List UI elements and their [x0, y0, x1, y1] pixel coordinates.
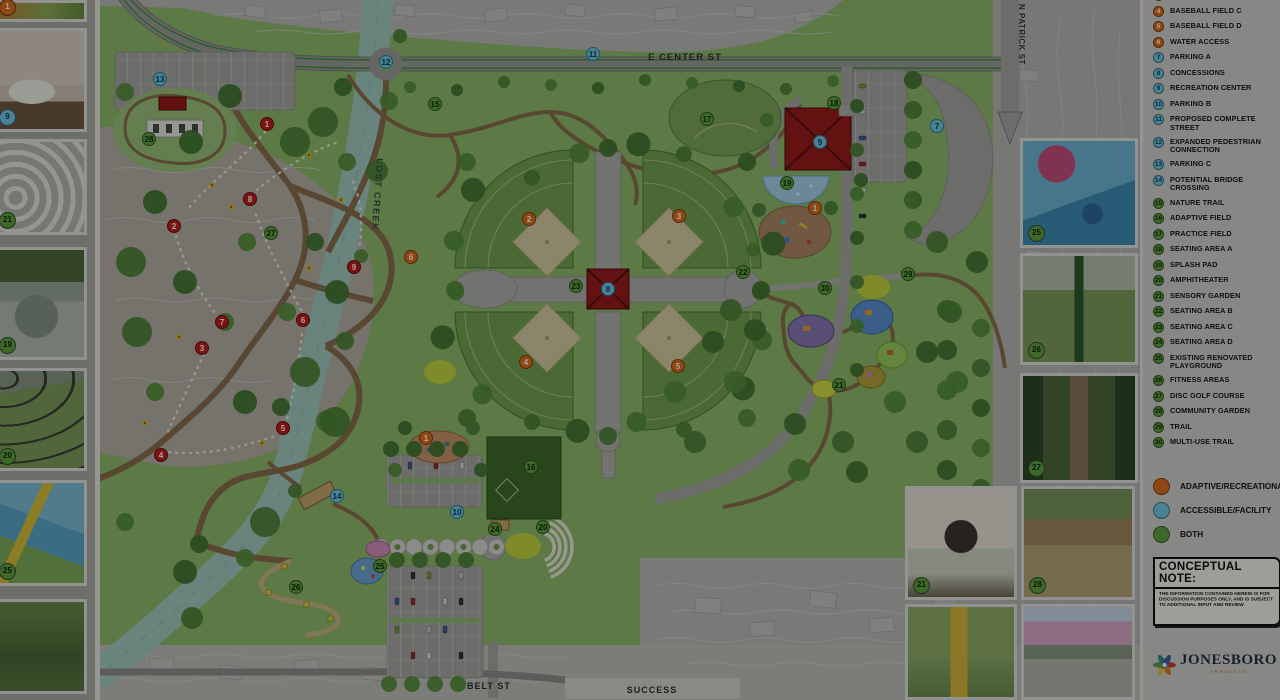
conceptual-note-title: CONCEPTUAL NOTE:: [1155, 559, 1279, 589]
photo-badge-19: 19: [0, 337, 16, 354]
legend-item-15: 15NATURE TRAIL: [1153, 198, 1277, 209]
legend-item-number: 9: [1153, 83, 1164, 94]
legend-item-number: 21: [1153, 291, 1164, 302]
photo-badge-21: 21: [0, 212, 16, 229]
legend-item-label: PRACTICE FIELD: [1170, 229, 1232, 239]
legend-item-label: SENSORY GARDEN: [1170, 291, 1240, 301]
legend-item-14: 14POTENTIAL BRIDGE CROSSING: [1153, 175, 1277, 193]
legend-item-7: 7PARKING A: [1153, 52, 1277, 63]
legend-item-number: 5: [1153, 21, 1164, 32]
legend-item-label: EXISTING RENOVATED PLAYGROUND: [1170, 353, 1277, 371]
legend-item-label: SEATING AREA B: [1170, 306, 1233, 316]
reference-photo: 21: [905, 486, 1017, 600]
legend-item-number: 8: [1153, 68, 1164, 79]
photo-badge-9: 9: [0, 109, 16, 126]
street-label-e-center: E CENTER ST: [648, 52, 722, 63]
legend-item-label: PARKING B: [1170, 99, 1211, 109]
photo-badge-25: 25: [1028, 225, 1045, 242]
legend-item-23: 23SEATING AREA C: [1153, 322, 1277, 333]
legend-item-number: 29: [1153, 422, 1164, 433]
legend-item-label: PROPOSED COMPLETE STREET: [1170, 114, 1277, 132]
legend-item-20: 20AMPHITHEATER: [1153, 275, 1277, 286]
legend-item-number: 12: [1153, 137, 1164, 148]
legend-key-swatch: [1153, 526, 1170, 543]
conceptual-note: CONCEPTUAL NOTE: THE INFORMATION CONTAIN…: [1153, 557, 1280, 626]
adaptive-field: [487, 437, 561, 519]
legend-item-number: 17: [1153, 229, 1164, 240]
existing-playground: [351, 558, 383, 584]
legend-item-label: CONCESSIONS: [1170, 68, 1225, 78]
legend-item-label: COMMUNITY GARDEN: [1170, 406, 1250, 416]
reference-photo: 9: [0, 28, 87, 132]
photo-grid-bottom: 2128: [905, 486, 1139, 700]
legend-item-22: 22SEATING AREA B: [1153, 306, 1277, 317]
logo-state-name: ARKANSAS: [1210, 669, 1247, 674]
reference-photo: 27: [1020, 373, 1138, 483]
legend-item-label: SEATING AREA A: [1170, 244, 1232, 254]
amphitheater-lawn: [505, 533, 541, 559]
legend-item-5: 5BASEBALL FIELD D: [1153, 21, 1277, 32]
legend-item-label: POTENTIAL BRIDGE CROSSING: [1170, 175, 1277, 193]
legend-item-number: 3: [1153, 0, 1164, 1]
legend-item-number: 16: [1153, 213, 1164, 224]
photo-badge-25: 25: [0, 563, 16, 580]
reference-photo: [1021, 604, 1135, 700]
legend-item-number: 22: [1153, 306, 1164, 317]
legend-item-number: 4: [1153, 6, 1164, 17]
photo-badge-1: 1: [0, 0, 16, 16]
photo-strip-left: 1921192025: [0, 0, 92, 700]
conceptual-note-body: THE INFORMATION CONTAINED HEREIN IS FOR …: [1159, 591, 1276, 607]
legend-item-label: SEATING AREA D: [1170, 337, 1233, 347]
legend-item-number: 27: [1153, 391, 1164, 402]
legend-item-label: MULTI-USE TRAIL: [1170, 437, 1234, 447]
legend-item-label: WATER ACCESS: [1170, 37, 1229, 47]
legend-item-label: PARKING A: [1170, 52, 1211, 62]
logo-city-name: JONESBORO: [1180, 652, 1277, 669]
legend-item-number: 26: [1153, 375, 1164, 386]
legend-item-16: 16ADAPTIVE FIELD: [1153, 213, 1277, 224]
jonesboro-logo-icon: [1153, 653, 1176, 677]
sensory-pod: [812, 380, 836, 398]
legend-item-label: FITNESS AREAS: [1170, 375, 1229, 385]
legend-item-number: 11: [1153, 114, 1164, 125]
legend-item-label: DISC GOLF COURSE: [1170, 391, 1245, 401]
legend-item-26: 26FITNESS AREAS: [1153, 375, 1277, 386]
legend-item-number: 14: [1153, 175, 1164, 186]
street-label-success: SUCCESS: [627, 685, 678, 695]
legend-item-number: 24: [1153, 337, 1164, 348]
legend-item-label: TRAIL: [1170, 422, 1192, 432]
street-label-belt: BELT ST: [467, 681, 511, 691]
legend-item-number: 20: [1153, 275, 1164, 286]
legend-item-25: 25EXISTING RENOVATED PLAYGROUND: [1153, 353, 1277, 371]
legend-item-17: 17PRACTICE FIELD: [1153, 229, 1277, 240]
legend-item-29: 29TRAIL: [1153, 422, 1277, 433]
reference-photo: 26: [1020, 253, 1138, 365]
legend-item-label: PARKING C: [1170, 159, 1211, 169]
legend-item-number: 25: [1153, 353, 1164, 364]
reference-photo: [905, 604, 1017, 700]
seating-lawn: [424, 360, 456, 384]
legend-item-21: 21SENSORY GARDEN: [1153, 291, 1277, 302]
legend-item-label: BASEBALL FIELD C: [1170, 6, 1242, 16]
legend-item-8: 8CONCESSIONS: [1153, 68, 1277, 79]
legend-item-number: 7: [1153, 52, 1164, 63]
legend-key-label: ACCESSIBLE/FACILITY: [1180, 506, 1271, 515]
legend-key-swatch: [1153, 502, 1170, 519]
street-label-n-patrick: N PATRICK ST: [1017, 4, 1026, 65]
photo-badge-27: 27: [1028, 460, 1045, 477]
legend-key-b: ACCESSIBLE/FACILITY: [1153, 502, 1277, 519]
photo-badge-21: 21: [913, 577, 930, 594]
legend-item-label: NATURE TRAIL: [1170, 198, 1225, 208]
pavilion-building: [159, 97, 186, 110]
legend-item-label: AMPHITHEATER: [1170, 275, 1229, 285]
legend-key-o: ADAPTIVE/RECREATIONAL: [1153, 478, 1277, 495]
legend-item-label: BASEBALL FIELD D: [1170, 21, 1242, 31]
legend-item-label: RECREATION CENTER: [1170, 83, 1251, 93]
legend-item-number: 18: [1153, 244, 1164, 255]
legend-key-g: BOTH: [1153, 526, 1277, 543]
legend-item-number: 13: [1153, 159, 1164, 170]
photo-badge-28: 28: [1029, 577, 1046, 594]
legend-color-key: ADAPTIVE/RECREATIONALACCESSIBLE/FACILITY…: [1153, 478, 1277, 543]
legend-item-11: 11PROPOSED COMPLETE STREET: [1153, 114, 1277, 132]
legend-item-label: SPLASH PAD: [1170, 260, 1218, 270]
reference-photo: 1: [0, 0, 87, 22]
jonesboro-logo: JONESBORO ARKANSAS: [1153, 652, 1277, 678]
legend-item-number: 23: [1153, 322, 1164, 333]
legend-item-list: 3BASEBALL FIELD B4BASEBALL FIELD C5BASEB…: [1153, 0, 1277, 448]
legend-item-13: 13PARKING C: [1153, 159, 1277, 170]
legend-item-label: EXPANDED PEDESTRIAN CONNECTION: [1170, 137, 1277, 155]
reference-photo: [0, 599, 87, 694]
sheet-edge: [95, 0, 100, 700]
legend-item-3: 3BASEBALL FIELD B: [1153, 0, 1277, 1]
legend-item-12: 12EXPANDED PEDESTRIAN CONNECTION: [1153, 137, 1277, 155]
legend-key-label: ADAPTIVE/RECREATIONAL: [1180, 482, 1280, 491]
legend-item-6: 6WATER ACCESS: [1153, 37, 1277, 48]
legend-item-19: 19SPLASH PAD: [1153, 260, 1277, 271]
existing-playground: [366, 541, 390, 557]
legend-item-number: 15: [1153, 198, 1164, 209]
legend-item-number: 28: [1153, 406, 1164, 417]
sensory-pod: [788, 315, 834, 347]
legend-item-30: 30MULTI-USE TRAIL: [1153, 437, 1277, 448]
photo-strip-right: 252627: [1020, 138, 1138, 483]
legend-item-4: 4BASEBALL FIELD C: [1153, 6, 1277, 17]
legend-item-number: 30: [1153, 437, 1164, 448]
legend-key-label: BOTH: [1180, 530, 1203, 539]
reference-photo: 25: [1020, 138, 1138, 248]
photo-badge-20: 20: [0, 448, 16, 465]
legend-item-28: 28COMMUNITY GARDEN: [1153, 406, 1277, 417]
legend-item-10: 10PARKING B: [1153, 99, 1277, 110]
reference-photo: 21: [0, 139, 87, 235]
legend-item-24: 24SEATING AREA D: [1153, 337, 1277, 348]
reference-photo: 25: [0, 480, 87, 586]
legend-item-number: 19: [1153, 260, 1164, 271]
legend-item-9: 9RECREATION CENTER: [1153, 83, 1277, 94]
legend-item-18: 18SEATING AREA A: [1153, 244, 1277, 255]
legend-panel: 3BASEBALL FIELD B4BASEBALL FIELD C5BASEB…: [1140, 0, 1280, 700]
legend-item-number: 6: [1153, 37, 1164, 48]
legend-item-label: SEATING AREA C: [1170, 322, 1233, 332]
reference-photo: 28: [1021, 486, 1135, 600]
legend-item-label: ADAPTIVE FIELD: [1170, 213, 1231, 223]
reference-photo: 20: [0, 368, 87, 471]
reference-photo: 19: [0, 247, 87, 360]
legend-item-number: 10: [1153, 99, 1164, 110]
photo-badge-26: 26: [1028, 342, 1045, 359]
legend-key-swatch: [1153, 478, 1170, 495]
legend-item-27: 27DISC GOLF COURSE: [1153, 391, 1277, 402]
